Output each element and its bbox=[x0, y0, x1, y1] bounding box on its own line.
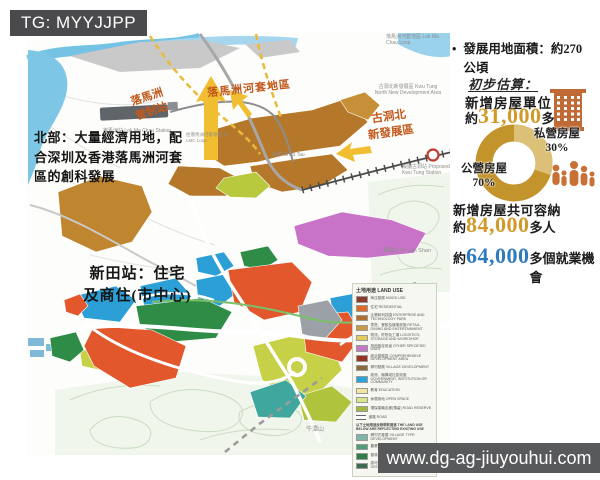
legend-label: 商住發展 MIXED USE bbox=[371, 297, 406, 301]
legend-row: 企業和科技園 ENTERPRISE AND TECHNOLOGY PARK bbox=[356, 314, 433, 322]
proposed-station-marker bbox=[428, 150, 439, 161]
capacity-value: 84,000 bbox=[466, 212, 530, 238]
jobs-value: 64,000 bbox=[466, 243, 530, 269]
donut-label-private: 私營房屋 30% bbox=[527, 128, 587, 156]
page: 落馬洲站 Lok Ma Chau Station 落馬洲河套地區 Lok Ma … bbox=[0, 0, 600, 480]
legend-label: 住宅 RESIDENTIAL bbox=[371, 306, 403, 310]
legend-row: 環保運輸走廊(預留) ROAD RESERVE bbox=[356, 406, 433, 413]
website-watermark: www.dg-ag-jiuyouhui.com bbox=[378, 443, 600, 473]
legend-swatch bbox=[356, 355, 368, 362]
annotation-san-tin-line2: 及商住(市中心) bbox=[55, 286, 220, 308]
legend-row: 政府、機構或社區設施 GOVERNMENT, INSTITUTION OR CO… bbox=[356, 374, 433, 385]
legend-label: 物流、貯物及工場 LOGISTICS, STORAGE AND WORKSHOP bbox=[371, 334, 434, 342]
legend-swatch bbox=[356, 397, 368, 404]
map-label-ki-lun-shan: 麒麟山 Ki Lun Shan bbox=[383, 248, 431, 255]
people-icon bbox=[550, 160, 596, 196]
annotation-north-note: 北部：大量經濟用地，配合深圳及香港落馬洲河套區的創科發展 bbox=[34, 128, 194, 187]
legend-swatch bbox=[356, 376, 368, 383]
legend-swatch bbox=[356, 296, 368, 303]
legend-label: 鄉村式發展 VILLAGE TYPE DEVELOPMENT bbox=[371, 434, 434, 442]
legend-row: 教育 EDUCATION bbox=[356, 388, 433, 395]
legend-label: 企業和科技園 ENTERPRISE AND TECHNOLOGY PARK bbox=[371, 314, 434, 322]
legend-swatch bbox=[356, 335, 368, 342]
legend-row: 鄉村發展 VILLAGE DEVELOPMENT bbox=[356, 365, 433, 372]
donut-label-public: 公營房屋 70% bbox=[456, 163, 512, 191]
legend-row: 住宅 RESIDENTIAL bbox=[356, 305, 433, 312]
legend-label: 政府、機構或社區設施 GOVERNMENT, INSTITUTION OR CO… bbox=[371, 374, 434, 385]
legend-swatch bbox=[356, 345, 368, 352]
stats-panel: • 發展用地面積：約270 公頃 初步估算： 新增房屋單位 約 31,000 多… bbox=[450, 0, 600, 440]
legend-swatch bbox=[356, 315, 368, 322]
annotation-san-tin: 新田站：住宅 及商住(市中心) bbox=[55, 264, 220, 308]
map-label-chau-tau: 洲頭 Chau Tau bbox=[272, 152, 305, 158]
legend-label: 環保運輸走廊(預留) ROAD RESERVE bbox=[371, 407, 432, 411]
legend-swatch bbox=[356, 365, 368, 372]
legend-swatch bbox=[356, 388, 368, 395]
legend-row: 休憩用地 OPEN SPACE bbox=[356, 397, 433, 404]
area-line2: 公頃 bbox=[463, 61, 488, 75]
legend-swatch bbox=[356, 305, 368, 312]
legend-swatch bbox=[356, 453, 368, 460]
telegram-watermark: TG: MYYJJPP bbox=[10, 10, 147, 36]
map-label-ngau-tam-shan: 牛潭山 bbox=[306, 427, 324, 435]
legend-label: 其他指定用途 OTHER SPECIFIED USES bbox=[371, 345, 434, 353]
area-bullet: • 發展用地面積：約270 公頃 bbox=[452, 40, 582, 78]
bullet-icon: • bbox=[452, 40, 456, 78]
legend-swatch bbox=[356, 325, 368, 332]
legend-swatch bbox=[356, 406, 368, 413]
estimate-heading: 初步估算： bbox=[468, 74, 538, 93]
legend-label: 鄉村發展 VILLAGE DEVELOPMENT bbox=[371, 366, 430, 370]
area-line1: 發展用地面積：約270 bbox=[463, 42, 582, 56]
legend-label: 道路 ROAD bbox=[369, 416, 388, 420]
legend-swatch bbox=[356, 434, 368, 441]
map-label-lmc-loop: 落馬洲河套地區 Lok Ma Chau Loop bbox=[386, 34, 448, 47]
legend-row: 綜合發展區 COMPREHENSIVE DEVELOPMENT AREA bbox=[356, 355, 433, 363]
legend-swatch bbox=[356, 463, 368, 470]
legend-label: 教育 EDUCATION bbox=[371, 389, 400, 393]
legend-title: 土地用途 LAND USE bbox=[356, 287, 433, 294]
legend-swatch bbox=[356, 444, 368, 451]
legend-row: 鄉村式發展 VILLAGE TYPE DEVELOPMENT bbox=[356, 434, 433, 442]
legend-row: 道路 ROAD bbox=[356, 415, 433, 420]
legend-label: 休憩用地 OPEN SPACE bbox=[371, 398, 409, 402]
legend-swatch bbox=[356, 415, 366, 420]
jobs-value-line: 約 64,000 多個就業機會 bbox=[453, 243, 600, 286]
capacity-value-line: 約 84,000 多人 bbox=[453, 212, 556, 238]
legend-row: 其他指定用途 OTHER SPECIFIED USES bbox=[356, 345, 433, 353]
legend-label: 綜合發展區 COMPREHENSIVE DEVELOPMENT AREA bbox=[371, 355, 434, 363]
legend-row: 物流、貯物及工場 LOGISTICS, STORAGE AND WORKSHOP bbox=[356, 334, 433, 342]
map-label-ktn: 古洞北新發展區 Kwu Tung North New Development A… bbox=[372, 84, 444, 97]
legend-subheader: 以下土地用途反映現有用途 THE LAND USE BELOW ARE REFL… bbox=[356, 423, 433, 431]
legend-row: 零售、餐飲及娛樂設施 RETAIL, DINING AND ENTERTAINM… bbox=[356, 324, 433, 332]
annotation-san-tin-line1: 新田站：住宅 bbox=[55, 264, 220, 286]
legend-row: 商住發展 MIXED USE bbox=[356, 296, 433, 303]
legend-label: 零售、餐飲及娛樂設施 RETAIL, DINING AND ENTERTAINM… bbox=[371, 324, 434, 332]
